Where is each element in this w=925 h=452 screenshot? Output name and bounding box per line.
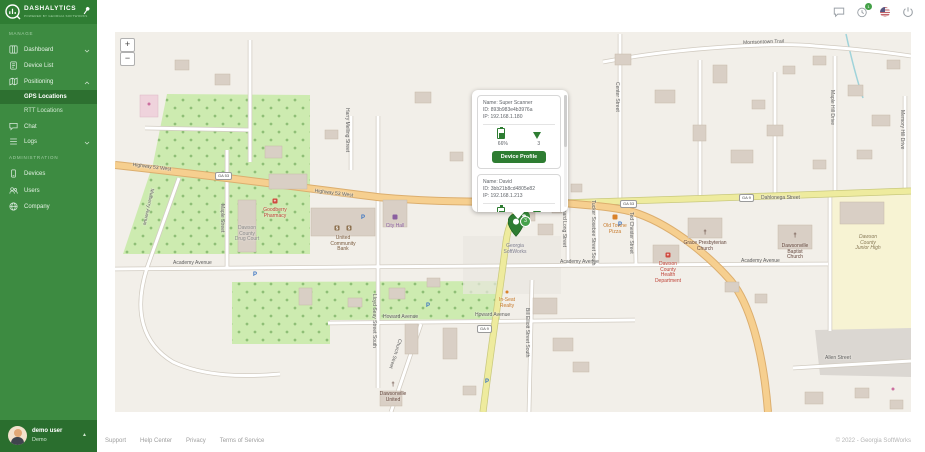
bank-icon: $ [347, 226, 352, 231]
globe-icon [9, 202, 18, 211]
street-label: Harry Melling Street [344, 108, 350, 152]
chevron-down-icon [84, 140, 90, 146]
footer-link[interactable]: Help Center [140, 438, 172, 444]
church-cross-icon: † [703, 230, 706, 236]
notifications-clock-icon[interactable]: 1 [855, 5, 869, 19]
sidebar-item-rtt-locations[interactable]: RTT Locations [0, 104, 97, 119]
sidebar-item-chat[interactable]: Chat [0, 120, 97, 135]
shop-icon [892, 388, 895, 391]
poi-label: In-SeatRealty [499, 298, 515, 309]
sidebar-item-label: Company [24, 204, 50, 210]
positioning-map-icon [9, 77, 18, 86]
section-label-administration: ADMINISTRATION [9, 155, 58, 160]
road-badge: GA 9 [739, 194, 754, 202]
sidebar-item-users[interactable]: Users [0, 184, 97, 199]
poi-label: UnitedCommunityBank [330, 236, 355, 253]
map[interactable]: Highway 53 WestHighway 53 WestMorrisonto… [115, 32, 911, 412]
sidebar-item-gps-locations[interactable]: GPS Locations [0, 90, 97, 104]
avatar [8, 426, 27, 445]
poi-label: DawsonvilleBaptistChurch [782, 244, 809, 261]
sidebar-item-company[interactable]: Company [0, 200, 97, 215]
poi-label: DawsonvilleUnited [380, 392, 407, 403]
street-label: Lloyd Seay Street South [371, 294, 377, 348]
poi-label: Grace PresbyterianChurch [683, 241, 726, 252]
signal-icon [533, 211, 541, 213]
sidebar-item-label: Device List [24, 63, 53, 69]
road-badge: GA 53 [620, 200, 637, 208]
sidebar-item-device-list[interactable]: Device List [0, 59, 97, 74]
chevron-up-icon [84, 80, 90, 86]
shop-icon [148, 103, 151, 106]
poi-label: GeorgiaSoftWorks [504, 244, 527, 255]
church-cross-icon: † [793, 233, 796, 239]
parking-icon: P [618, 222, 622, 228]
device-id: ID: 3bb21b8cd4805e82 [483, 186, 555, 193]
street-label: Memory Hill Drive [899, 110, 905, 149]
footer-links: SupportHelp CenterPrivacyTerms of Servic… [105, 438, 278, 444]
battery-icon [497, 128, 505, 139]
sidebar-item-label: Dashboard [24, 47, 53, 53]
device-id: ID: 893b983e4b3976a [483, 107, 555, 114]
hospital-icon: + [666, 253, 671, 258]
signal-value: 3 [537, 141, 540, 147]
sidebar-item-label: Devices [24, 171, 45, 177]
device-list-icon [9, 61, 18, 70]
sidebar-item-dashboard[interactable]: Dashboard [0, 43, 97, 58]
church-cross-icon: † [391, 382, 394, 388]
realty-icon [506, 291, 509, 294]
logs-icon [9, 137, 18, 146]
street-label: Tucker Sosebee Street South [590, 200, 596, 265]
footer-link[interactable]: Terms of Service [220, 438, 265, 444]
parking-icon: P [485, 379, 489, 385]
dashboard-icon [9, 45, 18, 54]
bank-icon: $ [335, 226, 340, 231]
street-label: Center Street [614, 82, 620, 112]
street-label: Allen Street [825, 355, 851, 361]
poi-label: DawsonCountyDrug Court [235, 226, 259, 243]
popup-tail [511, 211, 525, 219]
device-card: Name: David ID: 3bb21b8cd4805e82 IP: 192… [477, 174, 561, 213]
user-role: Demo [32, 437, 47, 443]
smartphone-icon [9, 169, 18, 178]
user-name: demo user [32, 428, 62, 434]
sidebar-item-label: GPS Locations [24, 94, 67, 100]
brand-name: DASHALYTICS [24, 5, 76, 12]
brand-logo-icon [4, 3, 22, 21]
device-name: Name: David [483, 179, 555, 186]
copyright: © 2022 - Georgia SoftWorks [836, 438, 911, 444]
parking-icon: P [361, 215, 365, 221]
device-ip: IP: 192.168.1.180 [483, 114, 555, 121]
language-flag-icon[interactable] [878, 5, 892, 19]
device-name: Name: Super Scanner [483, 100, 555, 107]
user-menu[interactable]: demo user Demo ▲ [0, 420, 97, 452]
street-label: Highway 53 West [132, 162, 171, 173]
battery-icon [497, 207, 505, 213]
sidebar-item-label: Logs [24, 139, 37, 145]
street-label: Maple Hill Drive [829, 90, 835, 125]
street-label: Morrisontown Trail [743, 39, 784, 46]
zoom-out-button[interactable]: − [120, 52, 135, 66]
poi-label: DawsonCountyHealthDepartment [655, 262, 681, 284]
users-icon [9, 186, 18, 195]
battery-value: 66% [498, 141, 508, 147]
sidebar-item-label: Chat [24, 124, 37, 130]
pharmacy-icon: + [273, 199, 278, 204]
logo-bar: DASHALYTICS POWERED BY GEORGIA SOFTWORKS [0, 0, 97, 24]
chat-icon [9, 122, 18, 131]
poi-label: City Hall [386, 224, 405, 230]
restaurant-icon [613, 215, 618, 220]
street-label: Academy Avenue [741, 258, 780, 264]
street-label: Howard Avenue [383, 314, 418, 320]
caret-up-icon: ▲ [82, 432, 87, 438]
poi-label: GoodberryPharmacy [263, 208, 287, 219]
popup-scrollbar[interactable] [564, 95, 567, 207]
sidebar-item-positioning[interactable]: Positioning [0, 75, 97, 90]
power-logout-icon[interactable] [901, 5, 915, 19]
street-label: Church Street [387, 338, 402, 369]
zoom-in-button[interactable]: + [120, 38, 135, 52]
sidebar-item-devices[interactable]: Devices [0, 167, 97, 182]
road-badge: GA 9 [477, 325, 492, 333]
device-ip: IP: 192.168.1.213 [483, 193, 555, 200]
parking-icon: P [253, 272, 257, 278]
street-label: Mulberry Avenue [141, 188, 155, 226]
chevron-down-icon [84, 48, 90, 54]
street-label: Dahlonega Street [761, 195, 800, 201]
topbar: 1 [97, 0, 925, 26]
street-label: Ted Chester Street [628, 212, 634, 254]
poi-label: DawsonCountyJunior High [855, 235, 880, 252]
road-badge: GA 53 [215, 172, 232, 180]
footer-link[interactable]: Privacy [186, 438, 206, 444]
brand-tagline: POWERED BY GEORGIA SOFTWORKS [24, 14, 88, 18]
footer-link[interactable]: Support [105, 438, 126, 444]
device-popup: Name: Super Scanner ID: 893b983e4b3976a … [472, 90, 568, 212]
street-label: Howard Avenue [475, 312, 510, 318]
app: DASHALYTICS POWERED BY GEORGIA SOFTWORKS… [0, 0, 925, 452]
device-profile-button[interactable]: Device Profile [492, 151, 546, 163]
sidebar-item-label: Users [24, 188, 40, 194]
poi-label: Old TownePizza [603, 224, 627, 235]
section-label-manage: MANAGE [9, 31, 33, 36]
messages-icon[interactable] [832, 5, 846, 19]
street-label: Highway 53 West [314, 188, 353, 199]
device-card: Name: Super Scanner ID: 893b983e4b3976a … [477, 95, 561, 169]
street-label: Maple Street [219, 204, 225, 232]
sidebar-item-label: RTT Locations [24, 108, 63, 114]
sidebar-item-label: Positioning [24, 79, 53, 85]
sidebar: DASHALYTICS POWERED BY GEORGIA SOFTWORKS… [0, 0, 97, 452]
street-label: Bill Elliott Street South [524, 308, 530, 357]
city-hall-icon [393, 215, 398, 220]
footer: SupportHelp CenterPrivacyTerms of Servic… [97, 430, 925, 452]
notification-badge: 1 [865, 3, 872, 10]
signal-icon [533, 132, 541, 139]
sidebar-item-logs[interactable]: Logs [0, 135, 97, 150]
pin-sidebar-icon[interactable] [81, 5, 92, 16]
parking-icon: P [426, 303, 430, 309]
street-label: Academy Avenue [173, 260, 212, 266]
